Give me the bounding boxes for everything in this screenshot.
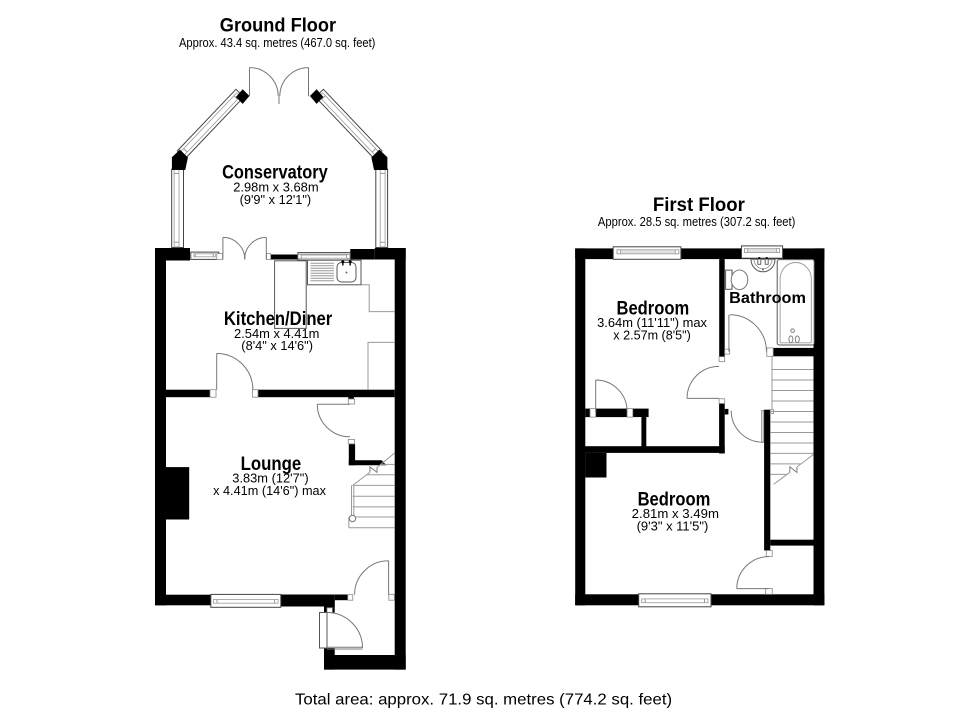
svg-text:Approx. 43.4 sq. metres (467.0: Approx. 43.4 sq. metres (467.0 sq. feet): [179, 35, 375, 50]
svg-text:Bathroom: Bathroom: [729, 290, 806, 307]
svg-text:x 4.41m (14'6") max: x 4.41m (14'6") max: [213, 483, 326, 498]
svg-text:(9'3" x 11'5"): (9'3" x 11'5"): [637, 519, 709, 534]
svg-text:Approx. 28.5 sq. metres (307.2: Approx. 28.5 sq. metres (307.2 sq. feet): [598, 214, 796, 229]
svg-text:(9'9" x 12'1"): (9'9" x 12'1"): [240, 192, 312, 207]
svg-text:Ground Floor: Ground Floor: [220, 15, 337, 37]
svg-text:x 2.57m (8'5"): x 2.57m (8'5"): [613, 328, 691, 343]
svg-text:Total area: approx. 71.9 sq. m: Total area: approx. 71.9 sq. metres (774…: [295, 691, 672, 708]
svg-text:(8'4" x 14'6"): (8'4" x 14'6"): [241, 338, 313, 353]
svg-text:First Floor: First Floor: [653, 194, 745, 216]
